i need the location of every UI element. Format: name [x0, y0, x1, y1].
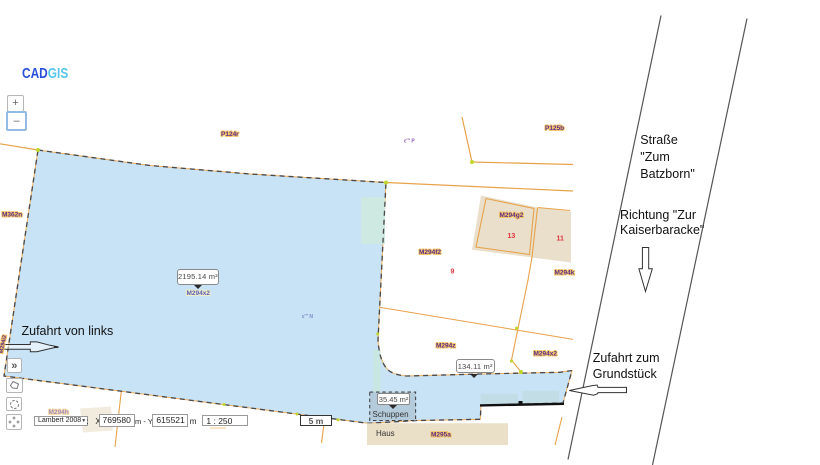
svg-text:P124r: P124r — [221, 131, 239, 138]
svg-text:13: 13 — [508, 233, 516, 240]
svg-text:ε′′′ N: ε′′′ N — [302, 314, 313, 320]
svg-text:9: 9 — [451, 269, 455, 276]
svg-text:11: 11 — [557, 236, 565, 243]
svg-text:M294f2: M294f2 — [419, 249, 441, 256]
svg-text:M295a: M295a — [431, 432, 451, 439]
svg-text:M362n: M362n — [2, 212, 22, 219]
svg-text:P125b: P125b — [545, 125, 564, 132]
svg-text:M294x2: M294x2 — [534, 351, 558, 358]
svg-text:M294z: M294z — [436, 343, 456, 350]
svg-text:ε′′′ P: ε′′′ P — [404, 139, 415, 145]
svg-text:M294x2: M294x2 — [187, 290, 211, 297]
svg-text:M294g2: M294g2 — [500, 212, 524, 219]
svg-text:M294k: M294k — [555, 270, 575, 277]
